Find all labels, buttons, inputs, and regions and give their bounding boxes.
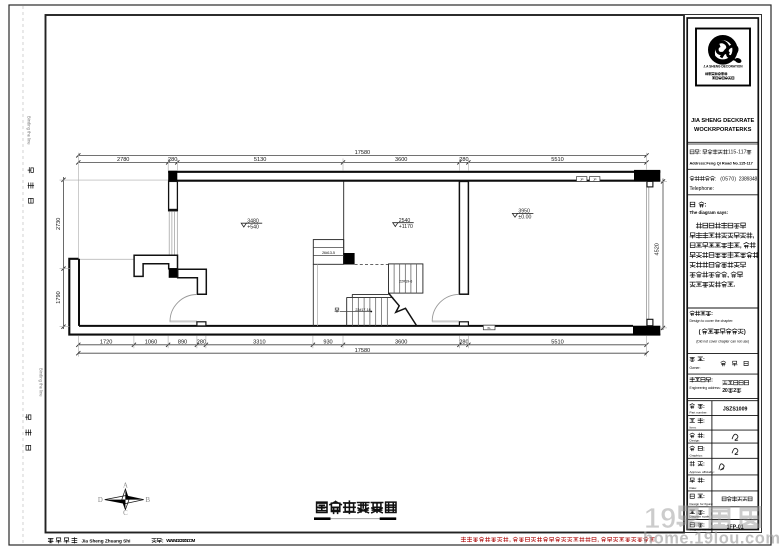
svg-text:1790: 1790 bbox=[56, 291, 62, 303]
svg-text:The diagram says:: The diagram says: bbox=[690, 210, 729, 215]
svg-text::: : bbox=[703, 419, 705, 425]
svg-text:22#19-6: 22#19-6 bbox=[399, 279, 412, 283]
svg-text:(Did not cover chapter can not: (Did not cover chapter can not use) bbox=[696, 339, 749, 343]
svg-text:Part number:: Part number: bbox=[690, 411, 708, 415]
svg-text:26#13-5: 26#13-5 bbox=[322, 251, 335, 255]
svg-text:280: 280 bbox=[459, 340, 468, 346]
svg-text:3310: 3310 bbox=[253, 340, 265, 346]
svg-text:Telephone:: Telephone: bbox=[690, 186, 714, 192]
svg-text:890: 890 bbox=[178, 340, 187, 346]
svg-text:JIA SHENG DECKRATE: JIA SHENG DECKRATE bbox=[691, 118, 754, 124]
svg-text:5510: 5510 bbox=[551, 157, 563, 163]
svg-text:Graphics:: Graphics: bbox=[690, 454, 703, 458]
svg-text:20: 20 bbox=[722, 388, 728, 394]
svg-text:home.19lou.com: home.19lou.com bbox=[643, 530, 780, 548]
svg-text:.: . bbox=[734, 282, 736, 289]
svg-text:,: , bbox=[740, 242, 742, 249]
svg-text:115-117: 115-117 bbox=[728, 150, 747, 156]
svg-text:WOCKRPORATERKS: WOCKRPORATERKS bbox=[694, 127, 752, 133]
svg-text:JSZS1009: JSZS1009 bbox=[723, 406, 748, 412]
svg-text:Design to cover the chapter:: Design to cover the chapter: bbox=[690, 319, 734, 323]
svg-text:2389348: 2389348 bbox=[739, 176, 758, 182]
svg-text:,: , bbox=[597, 537, 599, 543]
svg-text::: : bbox=[703, 446, 705, 452]
svg-text:Jia Sheng Zhuang Shi: Jia Sheng Zhuang Shi bbox=[82, 539, 131, 544]
svg-text:Design:: Design: bbox=[690, 438, 701, 442]
svg-text::: : bbox=[703, 478, 705, 484]
svg-text:1060: 1060 bbox=[145, 340, 157, 346]
svg-text::: : bbox=[703, 494, 705, 500]
svg-text:Binding the line: Binding the line bbox=[27, 116, 32, 145]
svg-text:1720: 1720 bbox=[100, 340, 112, 346]
svg-text:+1170: +1170 bbox=[399, 224, 413, 230]
svg-text::: : bbox=[703, 433, 705, 439]
svg-text:4520: 4520 bbox=[654, 243, 660, 255]
svg-text:17580: 17580 bbox=[355, 150, 371, 156]
svg-text:280: 280 bbox=[197, 340, 206, 346]
svg-text:3600: 3600 bbox=[395, 157, 407, 163]
svg-text:2780: 2780 bbox=[117, 157, 129, 163]
svg-text::: : bbox=[711, 311, 713, 317]
svg-text:J.A SHENG DECORATION: J.A SHENG DECORATION bbox=[703, 65, 743, 69]
svg-text:930: 930 bbox=[323, 340, 332, 346]
svg-text:,: , bbox=[727, 272, 729, 279]
svg-text:(: ( bbox=[699, 330, 701, 336]
svg-text:JP: JP bbox=[593, 178, 597, 182]
svg-text:JP: JP bbox=[580, 178, 584, 182]
svg-text:C: C bbox=[123, 510, 128, 517]
svg-text::: : bbox=[703, 357, 705, 363]
svg-text:Address:Feng Qi Road No.115-11: Address:Feng Qi Road No.115-117 bbox=[690, 161, 753, 166]
svg-text:,: , bbox=[753, 233, 755, 240]
svg-text:Item:: Item: bbox=[690, 425, 697, 429]
svg-text:A: A bbox=[123, 483, 128, 490]
svg-text:Date:: Date: bbox=[690, 486, 698, 490]
svg-text:5130: 5130 bbox=[254, 157, 266, 163]
svg-text:WWW.GZJSZS.COM: WWW.GZJSZS.COM bbox=[166, 538, 195, 543]
svg-text:): ) bbox=[744, 330, 746, 336]
svg-text:17580: 17580 bbox=[355, 348, 371, 354]
svg-text:5510: 5510 bbox=[551, 340, 563, 346]
svg-text:(0570): (0570) bbox=[720, 176, 736, 182]
svg-text::: : bbox=[703, 462, 705, 468]
svg-text:Binding the line: Binding the line bbox=[39, 368, 44, 397]
svg-text:2730: 2730 bbox=[56, 218, 62, 230]
svg-text::: : bbox=[711, 378, 713, 384]
svg-text:2: 2 bbox=[733, 388, 736, 394]
svg-text::: : bbox=[715, 176, 716, 182]
svg-text::: : bbox=[703, 404, 705, 410]
svg-text:Engineering address:: Engineering address: bbox=[690, 386, 721, 390]
svg-text:Approve officiality:: Approve officiality: bbox=[690, 470, 715, 474]
svg-text:280: 280 bbox=[459, 157, 468, 163]
svg-text:3600: 3600 bbox=[395, 340, 407, 346]
svg-text:Owner:: Owner: bbox=[690, 366, 701, 370]
svg-text:280: 280 bbox=[168, 157, 177, 163]
svg-text:+540: +540 bbox=[247, 224, 259, 230]
svg-text::: : bbox=[162, 538, 164, 544]
svg-text:Design for figure:: Design for figure: bbox=[690, 502, 714, 506]
svg-text:D: D bbox=[98, 497, 103, 504]
svg-text::: : bbox=[700, 150, 701, 156]
svg-text::: : bbox=[705, 203, 707, 209]
svg-text:XL: XL bbox=[487, 326, 491, 330]
svg-text:±0.00: ±0.00 bbox=[518, 215, 531, 221]
svg-text:B: B bbox=[146, 497, 151, 504]
svg-text:,: , bbox=[509, 537, 511, 543]
